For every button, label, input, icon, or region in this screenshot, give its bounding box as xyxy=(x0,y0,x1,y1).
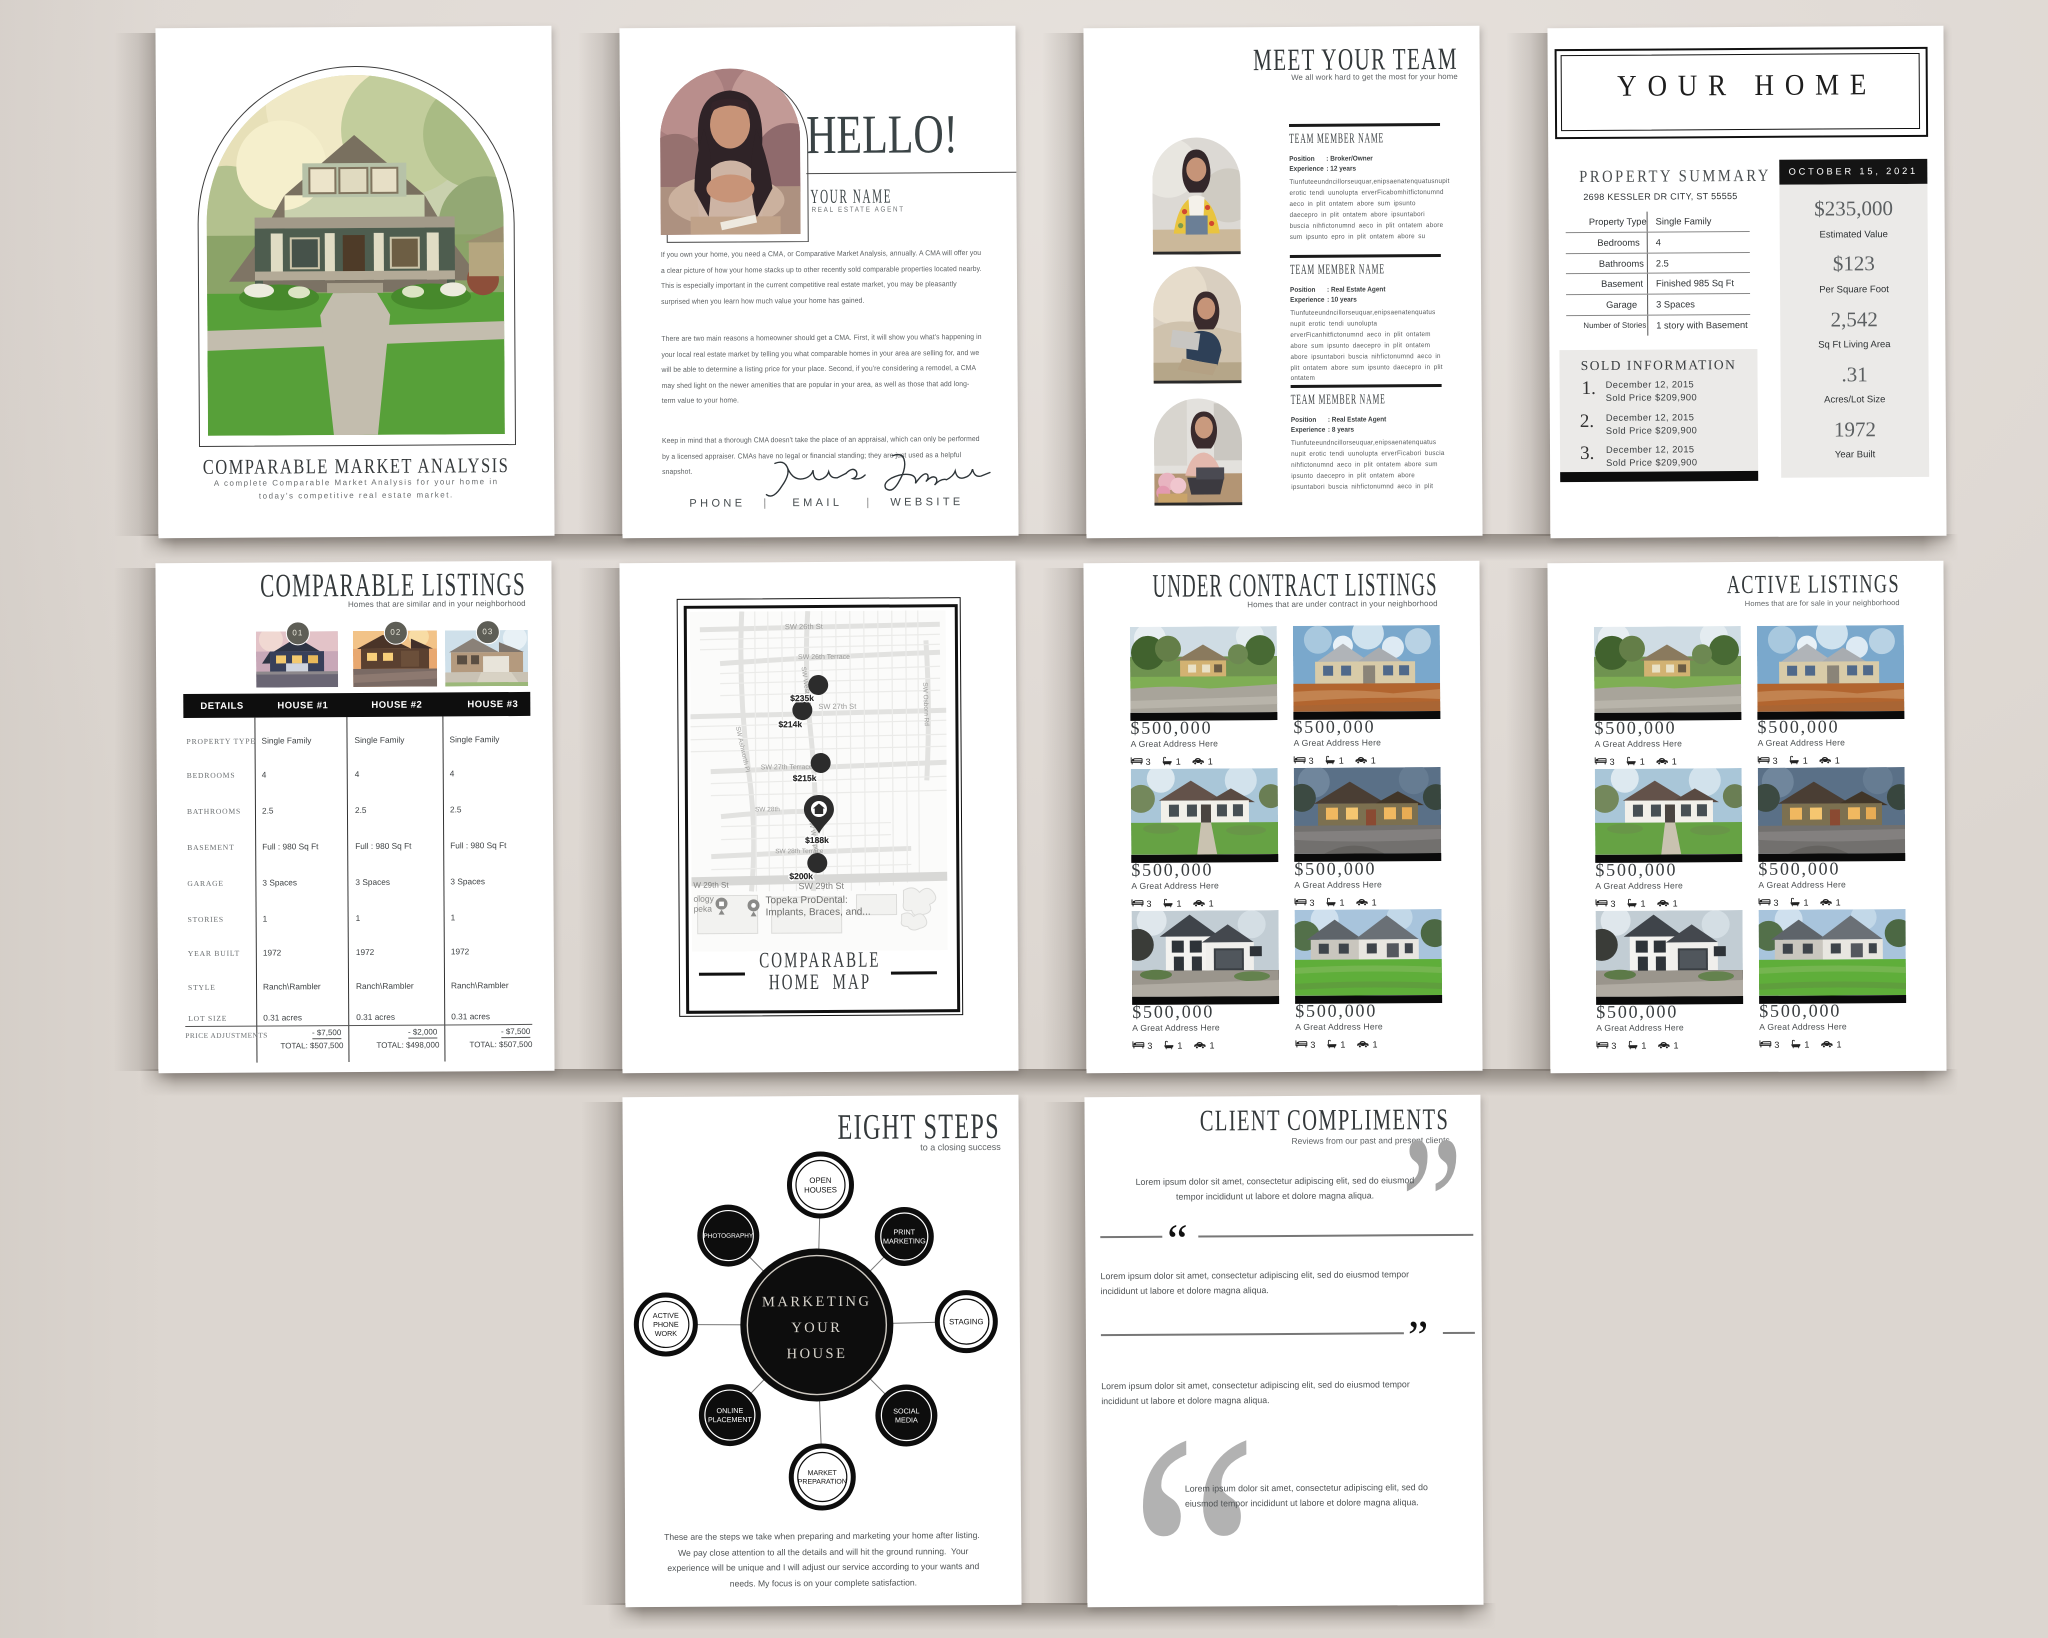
svg-text:MARKET: MARKET xyxy=(808,1470,838,1477)
svg-text:ology: ology xyxy=(693,894,714,904)
svg-text:$200k: $200k xyxy=(789,871,813,881)
svg-text:PHONE: PHONE xyxy=(653,1320,679,1329)
svg-text:PLACEMENT: PLACEMENT xyxy=(708,1415,753,1424)
svg-text:PHOTOGRAPHY: PHOTOGRAPHY xyxy=(703,1233,753,1240)
svg-text:SW 27th Terrace: SW 27th Terrace xyxy=(761,764,813,771)
svg-text:W 29th St: W 29th St xyxy=(693,881,729,890)
svg-text:SW 28th: SW 28th xyxy=(755,806,780,813)
svg-text:SW 26th Terrace: SW 26th Terrace xyxy=(798,654,850,661)
svg-text:ACTIVE: ACTIVE xyxy=(653,1311,679,1320)
svg-text:SOCIAL: SOCIAL xyxy=(893,1406,919,1415)
svg-text:HOUSES: HOUSES xyxy=(804,1185,837,1194)
svg-text:$214k: $214k xyxy=(778,719,802,729)
svg-text:MARKETING: MARKETING xyxy=(883,1236,926,1245)
svg-text:$188k: $188k xyxy=(805,835,829,845)
svg-text:YOUR: YOUR xyxy=(791,1320,842,1336)
svg-text:MEDIA: MEDIA xyxy=(895,1415,918,1424)
svg-text:SW 27th St: SW 27th St xyxy=(818,702,857,711)
svg-text:Topeka ProDental:: Topeka ProDental: xyxy=(765,895,847,907)
svg-text:peka: peka xyxy=(694,904,713,914)
svg-text:STAGING: STAGING xyxy=(949,1317,984,1326)
svg-text:SW 29th St: SW 29th St xyxy=(798,881,844,891)
svg-text:ONLINE: ONLINE xyxy=(716,1406,743,1415)
svg-text:PREPARATION: PREPARATION xyxy=(798,1479,847,1486)
svg-text:HOUSE: HOUSE xyxy=(787,1346,848,1362)
svg-text:SW 26th St: SW 26th St xyxy=(785,622,824,631)
svg-text:Implants, Braces, and...: Implants, Braces, and... xyxy=(766,907,871,919)
svg-text:OPEN: OPEN xyxy=(809,1176,831,1185)
svg-text:MARKETING: MARKETING xyxy=(762,1294,872,1311)
svg-text:$215k: $215k xyxy=(793,773,817,783)
svg-text:WORK: WORK xyxy=(655,1329,678,1338)
svg-text:$235k: $235k xyxy=(790,693,814,703)
svg-text:PRINT: PRINT xyxy=(893,1227,915,1236)
